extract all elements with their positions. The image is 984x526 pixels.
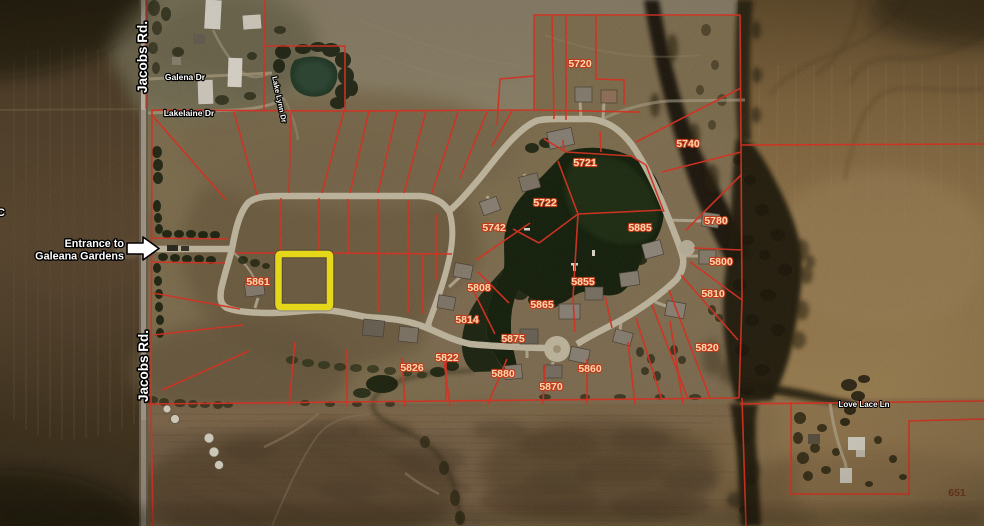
svg-text:5808: 5808	[467, 282, 491, 294]
svg-text:5826: 5826	[400, 362, 424, 374]
svg-text:Galeana Gardens: Galeana Gardens	[35, 251, 124, 263]
svg-text:5870: 5870	[539, 381, 563, 393]
svg-text:5855: 5855	[571, 276, 595, 288]
svg-text:5865: 5865	[530, 299, 554, 311]
svg-text:C: C	[0, 207, 5, 219]
svg-text:5800: 5800	[709, 256, 733, 268]
svg-text:5814: 5814	[455, 314, 479, 326]
svg-text:5875: 5875	[501, 333, 525, 345]
svg-text:5740: 5740	[676, 138, 700, 150]
svg-text:5810: 5810	[701, 288, 725, 300]
svg-text:Entrance to: Entrance to	[65, 238, 125, 250]
svg-text:5820: 5820	[695, 342, 719, 354]
svg-text:5860: 5860	[578, 363, 602, 375]
svg-text:Lakelaine Dr: Lakelaine Dr	[164, 108, 215, 118]
svg-text:651: 651	[948, 487, 966, 499]
svg-text:5721: 5721	[573, 157, 597, 169]
svg-text:Jacobs Rd.: Jacobs Rd.	[136, 330, 151, 402]
svg-text:Jacobs Rd.: Jacobs Rd.	[135, 21, 150, 93]
svg-text:5861: 5861	[246, 276, 270, 288]
svg-text:5722: 5722	[533, 197, 557, 209]
svg-text:5822: 5822	[435, 352, 459, 364]
svg-text:Galena Dr: Galena Dr	[165, 72, 206, 82]
svg-text:Love Lace Ln: Love Lace Ln	[838, 400, 889, 409]
svg-text:5720: 5720	[568, 58, 592, 70]
svg-text:5742: 5742	[482, 222, 506, 234]
svg-text:5780: 5780	[704, 215, 728, 227]
svg-text:5880: 5880	[491, 368, 515, 380]
svg-text:5885: 5885	[628, 222, 652, 234]
